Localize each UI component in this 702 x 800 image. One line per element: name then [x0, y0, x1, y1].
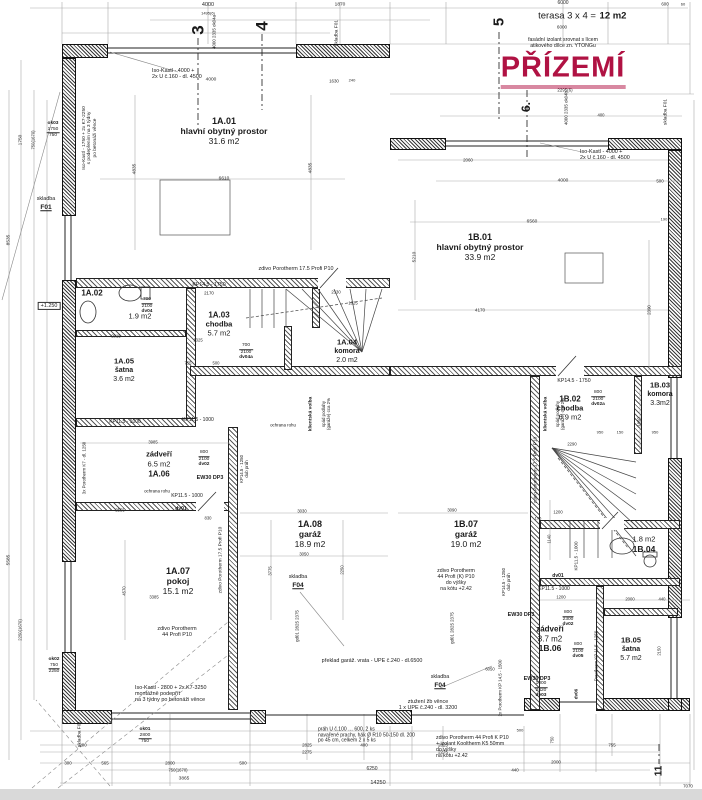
room-1b02-id: 1B.02 — [559, 394, 580, 403]
dim-label: 240 — [349, 79, 356, 84]
room-1a08-area: 18.9 m2 — [295, 540, 326, 550]
dim-label: 1870 — [335, 2, 346, 7]
room-1b07-area: 19.0 m2 — [451, 540, 482, 550]
room-1a03-name: chodba — [206, 320, 233, 329]
dim-label: 6560 — [527, 219, 538, 224]
skladba-f04-a-code: F04 — [292, 582, 303, 590]
door-dv02a: 8002100dv02a — [591, 390, 605, 408]
skladba-f01-right: skladba F01 — [663, 99, 668, 125]
room-1a05-name: šatna — [115, 367, 133, 375]
kp115-1000-b: KP11.5 - 1000 — [182, 418, 214, 424]
room-1a01-area: 31.6 m2 — [209, 137, 240, 147]
floor-title: PŘÍZEMÍ — [501, 52, 626, 89]
dim-label: 4170 — [475, 307, 485, 312]
door-dv02: 8002100dv02 — [199, 450, 210, 468]
ew30-dp3-a: EW30 DP3 — [197, 475, 224, 481]
dim-label: 6000 — [557, 1, 568, 7]
dv01-code-a: dv01 — [175, 507, 186, 513]
dim-label: 1200 — [556, 596, 565, 601]
room-1a02-id: 1A.02 — [81, 288, 102, 297]
unit-1b-highlight-top — [386, 124, 695, 136]
room-1b03-id: 1B.03 — [650, 382, 670, 391]
dim-label: 2825 — [438, 742, 448, 747]
door-dv02a-code: dv02a — [591, 402, 605, 408]
room-1b06-area: 3.7 m2 — [538, 635, 562, 644]
kp145-1750-b: KP14.5 - 1750 — [557, 379, 590, 385]
porotherm-44k-note: zdivo Porotherm 44 Profi K P10 + izolant… — [436, 736, 509, 760]
dim-label: 60 — [681, 3, 685, 8]
room-1b02-name: chodba — [557, 404, 584, 413]
dim-label: 150 — [617, 431, 624, 436]
dim-label: 2015 — [111, 335, 120, 340]
dim-label: 3030 — [297, 510, 306, 515]
room-1a04-area: 2.0 m2 — [336, 357, 357, 365]
window-ok01: ok012800750 — [139, 727, 152, 745]
gd01-code-a: gd01 2825 2375 — [294, 610, 299, 642]
dim-label: 4000 — [206, 77, 217, 82]
kp115-1000-d: KP11.5 - 1000 — [171, 494, 203, 500]
dim-label: 6050 — [485, 668, 494, 673]
dim-label: 190 — [661, 218, 668, 223]
dim-label: 2060 — [463, 157, 473, 162]
room-1b06-id: 1B.06 — [539, 644, 562, 654]
porotherm-175-note: zdivo Porotherm 17.5 Profi P10 — [259, 266, 334, 272]
ok04a-code: 4000 2335 ok04a — [211, 15, 216, 49]
room-1b06-name: zádveří — [536, 624, 564, 633]
door-dv02-b-code: dv02 — [563, 622, 574, 628]
dim-label: 830 — [205, 517, 212, 522]
kp145-1750-a: KP14.5 - 1750 — [192, 283, 225, 289]
dim-label: 2555 — [115, 509, 124, 514]
window-ok03: ok031750750 — [47, 121, 60, 139]
dim-label: 1630 — [329, 78, 339, 83]
dim-label: 440 — [511, 767, 518, 772]
room-1b04-id: 1B.04 — [633, 545, 656, 555]
dv06-code: dv06 — [573, 689, 578, 699]
dim-label: 2275 — [302, 749, 312, 754]
door-dv05-code: dv05 — [573, 654, 584, 660]
dim-label: 755 — [608, 742, 615, 747]
dim-label: 175 — [535, 517, 542, 522]
porotherm-k7-v: 3x Porotherm K7 - dl. 1250 — [81, 442, 86, 494]
kp115-1000-a: KP11.5 - 1000 — [109, 420, 141, 426]
skladba-f01-top: skladba F01 — [334, 20, 339, 46]
ok04b-code: 4000 2335 ok04b — [563, 91, 568, 125]
ochrana-rohu-b: ochrana rohu — [144, 488, 170, 493]
room-1b05-name: šatna — [622, 646, 640, 654]
dim-label: 2250(1670) — [19, 619, 24, 640]
dim-label: 500 — [213, 362, 220, 367]
room-1b04-area: 1.8 m2 — [633, 536, 656, 545]
dim-label: 4000 — [558, 178, 569, 183]
dim-label: 600 — [661, 1, 668, 6]
dim-label: 14250 — [370, 780, 385, 786]
skladba-f01-left: skladba — [37, 196, 56, 202]
window-ok02: ok027502250 — [49, 657, 60, 675]
room-1b07-name: garáž — [455, 530, 477, 540]
floor-plan: PŘÍZEMÍ 3456.11terasa 3 x 4 =12 m2fasádn… — [0, 0, 702, 800]
door-dv04-code: dv04 — [142, 309, 153, 315]
dim-label: 3385 — [149, 596, 158, 601]
skladba-f04-b: skladba — [431, 674, 450, 680]
door-dv02-code: dv02 — [199, 462, 210, 468]
door-dv03: 10002420dv03 — [535, 681, 548, 699]
window-ok01-bot: 750 — [139, 739, 152, 745]
room-1b03-area: 3.3m2 — [650, 400, 669, 408]
door-dv04a: 7002100dv04a — [239, 343, 253, 361]
section-mark-4: 4 — [252, 21, 271, 30]
skladba-f04-b-code: F04 — [434, 682, 445, 690]
room-1a04-id: 1A.04 — [337, 339, 357, 348]
dim-label: 300 — [64, 760, 71, 765]
porotherm-kp115-v: Porotherm KP 11.5 - 1250 — [593, 631, 598, 682]
skladba-f04-a: skladba — [289, 574, 308, 580]
dim-label: 4000 — [202, 2, 214, 8]
terasa-area: 12 m2 — [600, 12, 627, 23]
dim-label: 950 — [652, 431, 659, 436]
dim-label: 7070 — [683, 783, 693, 788]
porotherm-44-note: zdivo Porotherm 44 Profi P10 — [157, 626, 196, 638]
dim-label: 6250 — [366, 767, 377, 773]
dim-label: 3985 — [148, 441, 157, 446]
door-dv04a-code: dv04a — [239, 355, 253, 361]
room-1a03-area: 5.7 m2 — [208, 330, 231, 339]
door-dv03-code: dv03 — [535, 693, 548, 699]
dim-label: 2250 — [341, 565, 346, 574]
iso-kastl-bottom-note: Iso-Kastl - 2800 + 2x K7-3250 montážně p… — [135, 685, 206, 703]
dim-label: 750(1670) — [168, 769, 187, 774]
dim-label: 1495(6) — [201, 12, 215, 17]
room-1a05-area: 3.6 m2 — [113, 376, 134, 384]
room-1a06-id: 1A.06 — [148, 470, 169, 479]
dim-label: 8535 — [6, 235, 11, 246]
dim-label: 500 — [517, 729, 524, 734]
section-mark-5: 5 — [490, 18, 507, 26]
iso-kastl-right-note: Iso-Kastl - 4000 + 2x U č.160 - dl. 4500 — [580, 149, 630, 161]
garage-lintel-note: překlad garáž. vrata - UPE č.240 - dl.65… — [322, 658, 423, 664]
door-dv04: 7002100dv04 — [142, 297, 153, 315]
dim-label: 4570 — [123, 586, 128, 595]
dim-label: 1325 — [193, 339, 202, 344]
dim-label: 6000 — [557, 24, 567, 29]
room-1a01-id: 1A.01 — [212, 116, 236, 126]
section-mark-11: 11 — [653, 766, 664, 777]
room-1a06-area: 6.5 m2 — [148, 460, 171, 469]
room-1a05-id: 1A.05 — [114, 358, 134, 367]
dim-label: 1850 — [638, 417, 643, 426]
dim-label: 2290 — [567, 443, 576, 448]
dim-label: 750 — [551, 737, 556, 744]
dim-label: 2390 — [646, 305, 651, 315]
dim-label: 3050 — [299, 553, 308, 558]
room-1a07-name: pokoj — [167, 577, 190, 587]
gd01-code-b: gd01 2825 2375 — [449, 612, 454, 644]
dim-label: 5585 — [6, 555, 11, 566]
section-mark-6: 6. — [520, 102, 534, 112]
porotherm-175-note-v2: zdivo Porotherm 17.5 Profi P10 — [533, 437, 538, 504]
dim-label: 3865 — [179, 776, 190, 781]
dim-label: 2825 — [302, 742, 312, 747]
dim-label: 1200 — [553, 511, 562, 516]
window-ok03-bot: 750 — [47, 133, 60, 139]
dim-label: 6610 — [219, 176, 230, 181]
dim-label: 200 — [79, 742, 86, 747]
dim-label: 2275 — [438, 749, 448, 754]
window-ok03-code: ok03 — [47, 121, 60, 127]
room-1b01-id: 1B.01 — [468, 232, 492, 242]
window-ok02-code: ok02 — [49, 657, 60, 663]
kp115-1000-v: KP11.5 - 1000 — [573, 541, 578, 570]
porotherm-175-note-v1: zdivo Porotherm 17.5 Profi P10 — [218, 527, 223, 594]
iso-kastl-top-note: Iso-Kastl - 4000 + 2x U č.160 - dl. 4500 — [152, 68, 202, 80]
dim-label: 750(1670) — [32, 130, 37, 149]
door-dv05: 8002100dv05 — [573, 642, 584, 660]
dim-label: 755 — [185, 362, 192, 367]
dim-label: 5210 — [412, 252, 417, 263]
klientska-volba-b: klientská volba — [543, 397, 548, 431]
room-1b05-area: 5.7 m2 — [620, 655, 641, 663]
ew30-dp3-b: EW30 DP3 — [508, 612, 535, 618]
porotherm-kp145-v: 2x Porotherm KP 14.5 - 1500 — [497, 660, 502, 717]
room-1b01-area: 33.9 m2 — [465, 253, 496, 263]
kp145-1750-a2: 2170 — [204, 290, 214, 295]
dim-label: 4835 — [308, 163, 313, 174]
room-1a04-name: komora — [334, 348, 359, 356]
dim-label: 400 — [360, 742, 367, 747]
dim-label: 3775 — [269, 566, 274, 575]
window-ok01-code: ok01 — [139, 727, 152, 733]
dim-label: 500 — [239, 760, 246, 765]
room-1b07-id: 1B.07 — [454, 519, 478, 529]
room-1a07-area: 15.1 m2 — [163, 587, 194, 597]
level-mark: +1.250 — [38, 302, 61, 310]
kp145-1250-v1: KP14.5 - 1250 dub práh — [239, 455, 249, 483]
dim-label: 2000 — [625, 598, 634, 603]
ring-beam-note: ztužení žb věnce 1 x UPE č.240 - dl. 320… — [399, 699, 457, 711]
ochrana-rohu-a: ochrana rohu — [270, 422, 296, 427]
room-1a06-name: zádveří — [146, 451, 172, 460]
window-ok02-bot: 2250 — [49, 669, 60, 675]
facade-note: fasádní izolant srovnat s lícem atikovéh… — [528, 38, 598, 50]
klientska-volba-a: klientská volba — [308, 397, 313, 431]
dim-label: 1025 — [348, 302, 357, 307]
kp145-1250-v2: KP14.5 - 1250 dub práh — [501, 568, 511, 596]
dim-label: 950 — [597, 431, 604, 436]
room-1a08-id: 1A.08 — [298, 519, 322, 529]
dim-label: 2330 — [331, 291, 340, 296]
dim-label: 565 — [101, 760, 108, 765]
room-1b05-id: 1B.05 — [621, 637, 641, 646]
unit-1b-highlight-bottom — [386, 713, 695, 725]
door-dv02-b: 8002300dv02 — [563, 610, 574, 628]
dim-label: 500 — [656, 178, 663, 183]
spad-podlahy-a: spád podlahy (garáže) cca 2% — [321, 398, 331, 430]
room-1a03-id: 1A.03 — [208, 310, 229, 319]
bottom-gray-strip — [0, 789, 702, 800]
dim-label: 2000 — [551, 759, 561, 764]
dim-label: 4835 — [132, 164, 137, 175]
highlight-corner-box — [38, 0, 52, 12]
skladba-f01-left-code: F01 — [40, 204, 51, 212]
room-1b02-area: 6.9 m2 — [559, 414, 582, 423]
dim-label: 1750 — [18, 135, 23, 146]
room-1b03-name: komora — [647, 391, 672, 399]
section-mark-3: 3 — [188, 25, 207, 34]
room-1a01-name: hlavní obytný prostor — [181, 127, 268, 137]
dim-label: 3090 — [447, 509, 456, 514]
porotherm-44k-garage-note: zdivo Porotherm 44 Profi (K) P10 do výšk… — [437, 569, 475, 593]
iso-kastl-left-note: Iso-Kastl - 1750 + 2x K7-2250 s podepřen… — [82, 106, 98, 170]
unit-1b-highlight-left — [386, 53, 397, 725]
terasa-label: terasa 3 x 4 = — [538, 12, 596, 23]
dim-label: 400 — [598, 114, 605, 119]
unit-1b-highlight-right — [684, 124, 695, 725]
dim-label: 2150 — [658, 646, 663, 655]
dim-label: 2800 — [165, 760, 175, 765]
kp115-1000-c: KP11.5 - 1000 — [538, 587, 570, 593]
room-1b01-name: hlavní obytný prostor — [437, 243, 524, 253]
dim-label: 440 — [659, 598, 666, 603]
room-1a08-name: garáž — [299, 530, 321, 540]
dv01-code-b: dv01 — [552, 574, 563, 580]
dim-label: 1140 — [548, 534, 553, 543]
room-1a07-id: 1A.07 — [166, 566, 190, 576]
